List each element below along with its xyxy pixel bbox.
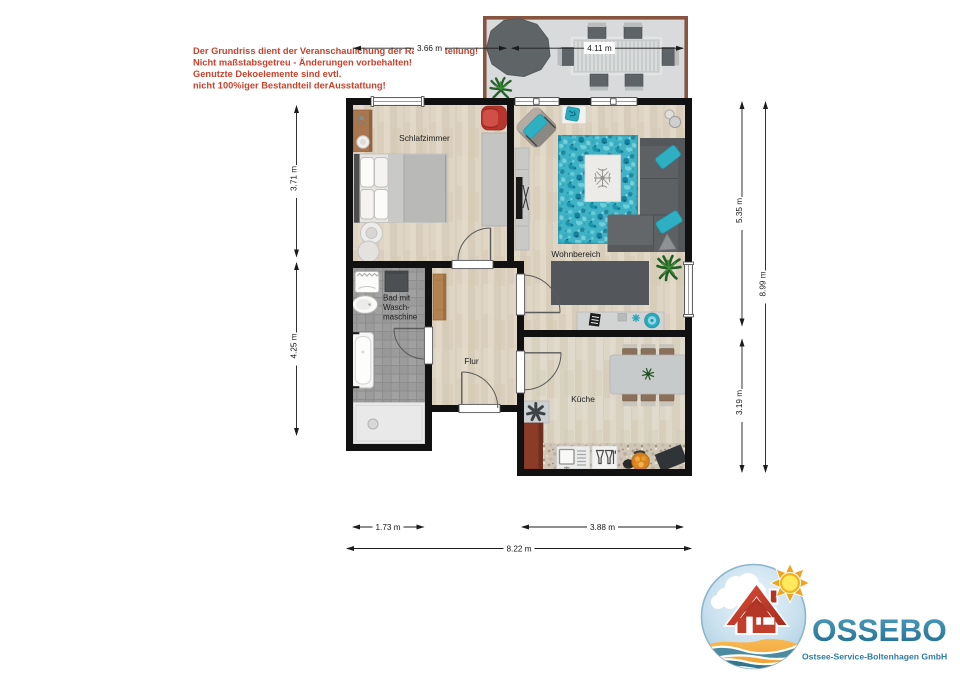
svg-text:5.35 m: 5.35 m — [735, 198, 744, 223]
svg-text:Küche: Küche — [571, 394, 595, 404]
svg-text:Flur: Flur — [464, 356, 479, 366]
svg-text:OSSEBO: OSSEBO — [812, 612, 947, 648]
svg-text:Nicht maßstabsgetreu - Änderun: Nicht maßstabsgetreu - Änderungen vorbeh… — [193, 58, 412, 68]
svg-text:Bad mit: Bad mit — [383, 294, 411, 303]
svg-text:maschine: maschine — [383, 313, 418, 322]
svg-text:nicht 100%iger Bestandteil der: nicht 100%iger Bestandteil derAusstattun… — [193, 81, 386, 91]
svg-text:Wasch-: Wasch- — [383, 303, 410, 312]
svg-text:Genutzte Dekoelemente sind evt: Genutzte Dekoelemente sind evtl. — [193, 69, 341, 79]
svg-text:Schlafzimmer: Schlafzimmer — [399, 133, 450, 143]
svg-text:3.19 m: 3.19 m — [735, 390, 744, 415]
svg-text:Ostsee-Service-Boltenhagen Gmb: Ostsee-Service-Boltenhagen GmbH — [802, 652, 947, 662]
svg-text:8.22 m: 8.22 m — [506, 545, 531, 554]
svg-text:3.88 m: 3.88 m — [590, 523, 615, 532]
svg-text:4.25 m: 4.25 m — [290, 333, 299, 358]
svg-text:8.99 m: 8.99 m — [759, 271, 768, 296]
svg-text:1.73 m: 1.73 m — [375, 523, 400, 532]
svg-text:4.11 m: 4.11 m — [587, 44, 612, 53]
svg-text:Wohnbereich: Wohnbereich — [551, 249, 601, 259]
svg-text:3.66 m: 3.66 m — [417, 44, 442, 53]
svg-text:3.71 m: 3.71 m — [290, 166, 299, 191]
